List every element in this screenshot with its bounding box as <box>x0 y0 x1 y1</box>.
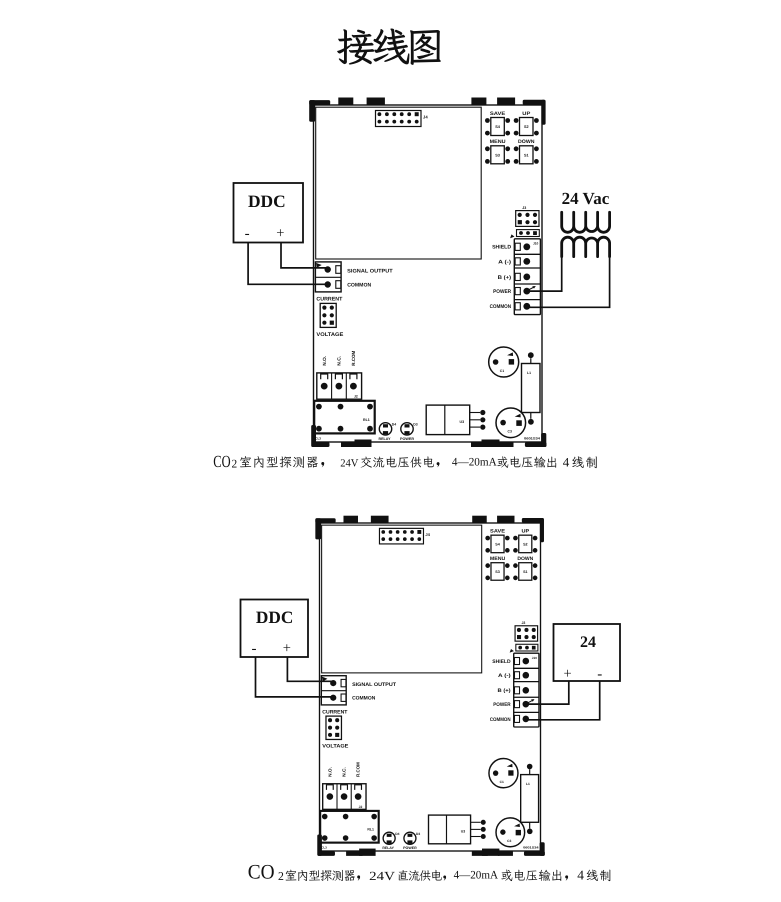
svg-text:24V: 24V <box>369 869 395 883</box>
svg-text:SIGNAL OUTPUT: SIGNAL OUTPUT <box>347 268 393 274</box>
svg-text:D3: D3 <box>416 832 420 836</box>
svg-text:-: - <box>245 226 250 242</box>
svg-text:SHIELD: SHIELD <box>492 245 511 251</box>
svg-text:-: - <box>252 641 257 657</box>
svg-text:N.C.: N.C. <box>342 767 347 777</box>
svg-text:C3: C3 <box>507 839 511 843</box>
svg-text:B (+): B (+) <box>498 275 512 281</box>
svg-text:UP: UP <box>521 529 529 535</box>
svg-text:24: 24 <box>580 634 596 651</box>
svg-text:4: 4 <box>563 455 570 470</box>
svg-text:B (+): B (+) <box>498 688 511 694</box>
svg-text:C1: C1 <box>500 780 504 784</box>
svg-text:D4: D4 <box>392 423 396 427</box>
svg-text:COMMON: COMMON <box>347 283 371 289</box>
svg-text:J4: J4 <box>423 115 428 120</box>
svg-text:D3: D3 <box>413 423 417 427</box>
svg-text:CO: CO <box>213 452 230 471</box>
svg-text:N.O.: N.O. <box>328 767 333 777</box>
svg-text:S3: S3 <box>495 154 500 158</box>
svg-text:S2: S2 <box>523 543 528 547</box>
svg-text:C3: C3 <box>508 430 512 434</box>
svg-text:CURRENT: CURRENT <box>316 297 343 303</box>
svg-text:COMMON: COMMON <box>352 696 375 702</box>
svg-text:24 Vac: 24 Vac <box>562 189 610 208</box>
svg-text:0601S34: 0601S34 <box>523 846 539 850</box>
svg-text:S1: S1 <box>524 154 529 158</box>
svg-text:J3: J3 <box>522 206 526 210</box>
svg-text:RELAY: RELAY <box>379 437 392 441</box>
svg-text:0601S34: 0601S34 <box>524 436 540 440</box>
svg-text:DOWN: DOWN <box>517 556 533 562</box>
svg-text:CL3: CL3 <box>321 846 327 850</box>
svg-text:POWER: POWER <box>493 289 511 295</box>
svg-text:VOLTAGE: VOLTAGE <box>316 332 344 338</box>
svg-text:MENU: MENU <box>490 556 506 562</box>
svg-text:2: 2 <box>232 456 238 470</box>
svg-text:S2: S2 <box>524 125 529 129</box>
svg-text:RL1: RL1 <box>367 828 374 832</box>
svg-text:4—20mA: 4—20mA <box>452 456 497 468</box>
svg-text:DOWN: DOWN <box>518 139 535 145</box>
svg-text:CURRENT: CURRENT <box>322 709 348 715</box>
svg-text:L1: L1 <box>526 782 530 786</box>
svg-text:SAVE: SAVE <box>490 111 506 117</box>
svg-text:RELAY: RELAY <box>382 846 394 850</box>
svg-text:J10: J10 <box>532 656 537 660</box>
svg-text:R.COM: R.COM <box>356 762 361 777</box>
svg-text:S3: S3 <box>495 570 500 574</box>
svg-text:L1: L1 <box>527 371 531 375</box>
svg-text:COMMON: COMMON <box>490 717 511 723</box>
svg-text:UP: UP <box>522 111 531 117</box>
svg-text:J3: J3 <box>521 621 525 625</box>
svg-text:D4: D4 <box>395 832 399 836</box>
svg-text:A (-): A (-) <box>498 673 511 679</box>
svg-text:J2: J2 <box>354 395 358 399</box>
svg-text:+: + <box>564 666 572 682</box>
svg-text:SAVE: SAVE <box>490 529 506 535</box>
svg-text:N.C.: N.C. <box>336 356 341 366</box>
svg-text:MENU: MENU <box>490 139 506 145</box>
svg-text:+: + <box>276 226 284 242</box>
svg-text:SIGNAL OUTPUT: SIGNAL OUTPUT <box>352 682 397 688</box>
svg-text:4: 4 <box>577 868 584 883</box>
svg-text:POWER: POWER <box>493 702 511 708</box>
svg-text:DDC: DDC <box>256 608 293 627</box>
svg-text:RL1: RL1 <box>363 418 370 422</box>
svg-text:U3: U3 <box>460 420 465 424</box>
svg-text:SHIELD: SHIELD <box>492 659 511 665</box>
svg-text:VOLTAGE: VOLTAGE <box>322 744 349 750</box>
svg-text:S1: S1 <box>523 570 528 574</box>
svg-text:24V: 24V <box>340 457 358 469</box>
svg-text:J4: J4 <box>425 532 430 537</box>
svg-text:R.COM: R.COM <box>351 351 356 366</box>
svg-text:COMMON: COMMON <box>490 304 512 310</box>
svg-text:U3: U3 <box>461 829 465 833</box>
svg-text:POWER: POWER <box>403 846 417 850</box>
svg-text:CL3: CL3 <box>315 436 321 440</box>
svg-text:J10: J10 <box>533 242 539 246</box>
svg-text:N.O.: N.O. <box>322 356 327 366</box>
svg-text:J2: J2 <box>359 805 363 809</box>
svg-text:C1: C1 <box>500 369 504 373</box>
svg-text:-: - <box>597 666 602 682</box>
svg-text:CO: CO <box>248 862 275 884</box>
svg-text:4—20mA: 4—20mA <box>454 870 499 882</box>
svg-text:+: + <box>283 640 291 656</box>
svg-text:A (-): A (-) <box>498 259 511 265</box>
svg-text:2: 2 <box>278 869 284 883</box>
svg-text:POWER: POWER <box>400 437 414 441</box>
svg-text:DDC: DDC <box>248 191 286 211</box>
